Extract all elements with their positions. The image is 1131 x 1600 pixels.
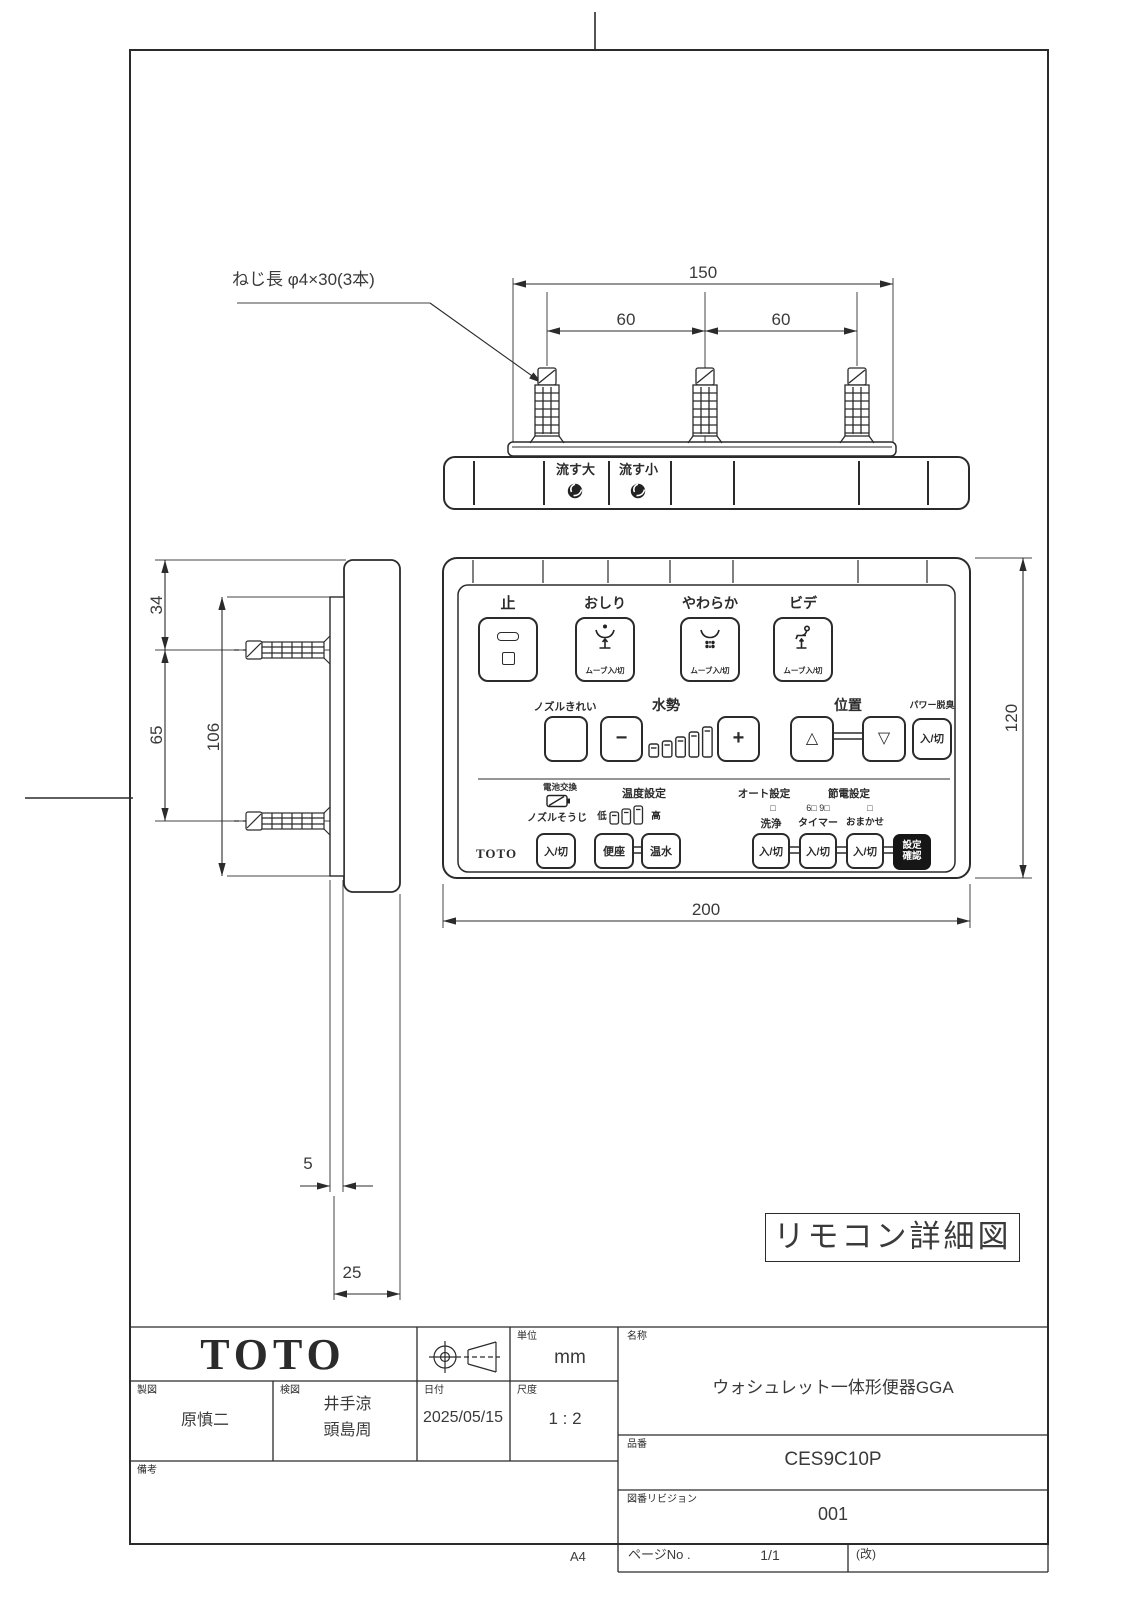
move-onoff-label: ムーブ入/切 xyxy=(684,667,736,676)
date-value: 2025/05/15 xyxy=(417,1409,509,1427)
scale-label: 尺度 xyxy=(517,1385,537,1397)
position-label: 位置 xyxy=(820,697,876,713)
paper-size: A4 xyxy=(570,1550,586,1565)
entrust-indicator: □ xyxy=(860,803,880,813)
set-confirm-line2: 確認 xyxy=(893,851,931,862)
rear-wash-label: おしり xyxy=(575,595,635,611)
remote-top-edge-view xyxy=(443,456,970,510)
eco-setting-label: 節電設定 xyxy=(820,788,878,800)
drafter-name: 原慎二 xyxy=(150,1412,260,1430)
auto-setting-label: オート設定 xyxy=(735,788,793,800)
entrust-label: おまかせ xyxy=(841,818,889,829)
water-strength-label: 水勢 xyxy=(638,697,694,713)
checker-name-2: 頭島周 xyxy=(290,1422,405,1440)
dim-remote-height: 120 xyxy=(1003,688,1021,748)
name-label: 名称 xyxy=(627,1331,647,1343)
band-divider xyxy=(927,461,929,505)
revision-mark: (改) xyxy=(856,1548,876,1562)
timer-label: タイマー xyxy=(795,818,841,830)
band-divider xyxy=(670,461,672,505)
flush-large-button: 流す大 xyxy=(543,463,608,478)
position-down-button: ▽ xyxy=(862,716,906,762)
water-minus-button: − xyxy=(600,716,643,762)
battery-icon xyxy=(546,794,572,808)
battery-label: 電池交換 xyxy=(536,783,584,793)
stamp-text: リモコン詳細図 xyxy=(774,1219,1012,1254)
remarks-label: 備考 xyxy=(137,1465,157,1477)
stop-label: 止 xyxy=(478,595,538,612)
bidet-button: ムーブ入/切 xyxy=(773,617,833,682)
drawing-sheet: ねじ長 φ4×30(3本) 150 60 60 34 65 106 120 5 … xyxy=(0,0,1131,1600)
dim-overall-width: 150 xyxy=(668,263,738,283)
wall-plate-side-view xyxy=(330,597,344,876)
wall-anchor-3 xyxy=(840,368,874,443)
wash-label: 洗浄 xyxy=(749,818,793,830)
nozzle-clean-label: ノズルきれい xyxy=(530,701,600,713)
water-plus-button: + xyxy=(717,716,760,762)
nozzle-clean-button xyxy=(544,716,588,762)
temp-setting-label: 温度設定 xyxy=(616,788,672,801)
nozzle-wash-onoff-button: 入/切 xyxy=(536,833,576,869)
position-up-button: △ xyxy=(790,716,834,762)
brand-logo: TOTO xyxy=(145,1330,401,1381)
entrust-onoff-button: 入/切 xyxy=(846,833,884,869)
remote-body-side-view xyxy=(344,560,400,892)
soft-wash-button: ムーブ入/切 xyxy=(680,617,740,682)
dim-top-offset: 34 xyxy=(148,575,166,635)
soft-spray-icon xyxy=(698,624,722,652)
scale-value: 1 : 2 xyxy=(517,1409,613,1429)
move-onoff-label: ムーブ入/切 xyxy=(777,667,829,676)
dim-pitch-side: 65 xyxy=(148,705,166,765)
nozzle-wash-label: ノズルそうじ xyxy=(527,813,585,825)
timer-onoff-button: 入/切 xyxy=(799,833,837,869)
unit-label: 単位 xyxy=(517,1331,537,1343)
unit-value: mm xyxy=(530,1347,610,1369)
wash-onoff-button: 入/切 xyxy=(752,833,790,869)
stamp-box: リモコン詳細図 xyxy=(765,1213,1020,1262)
wall-anchor-2 xyxy=(688,368,722,443)
flush-large-swirl-icon xyxy=(566,482,584,500)
page-value: 1/1 xyxy=(740,1547,800,1563)
dim-body-depth: 25 xyxy=(330,1263,374,1283)
band-divider xyxy=(733,461,735,505)
band-divider xyxy=(858,461,860,505)
side-anchor-1 xyxy=(234,636,330,664)
side-anchor-2 xyxy=(234,807,330,835)
dim-pitch-right: 60 xyxy=(755,310,807,330)
third-angle-projection-icon xyxy=(429,1341,500,1373)
dim-remote-width: 200 xyxy=(671,900,741,920)
seat-button: 便座 xyxy=(594,833,634,869)
rear-wash-button: ムーブ入/切 xyxy=(575,617,635,682)
temp-low-label: 低 xyxy=(594,812,610,823)
dim-plate-thickness: 5 xyxy=(293,1154,323,1174)
rear-spray-icon xyxy=(593,624,617,652)
name-value: ウォシュレット一体形便器GGA xyxy=(620,1378,1046,1398)
wall-anchor-1 xyxy=(530,368,564,443)
revision-value: 001 xyxy=(620,1504,1046,1525)
hot-water-button: 温水 xyxy=(641,833,681,869)
move-onoff-label: ムーブ入/切 xyxy=(579,667,631,676)
drafter-label: 製図 xyxy=(137,1385,157,1397)
deodorizer-onoff-button: 入/切 xyxy=(912,718,952,760)
screw-note: ねじ長 φ4×30(3本) xyxy=(232,270,375,290)
set-confirm-line1: 設定 xyxy=(893,840,931,851)
set-confirm-button: 設定 確認 xyxy=(893,834,931,870)
brand-logo-small: TOTO xyxy=(476,847,517,862)
dim-plate-height: 106 xyxy=(205,707,223,767)
flush-small-swirl-icon xyxy=(629,482,647,500)
bidet-person-icon xyxy=(791,624,815,652)
soft-wash-label: やわらか xyxy=(668,595,752,611)
date-label: 日付 xyxy=(424,1385,444,1397)
part-number: CES9C10P xyxy=(620,1449,1046,1471)
wash-indicator: □ xyxy=(763,803,783,813)
timer-indicator: 6□ 9□ xyxy=(790,803,846,813)
checker-label: 検図 xyxy=(280,1385,300,1397)
deodorizer-label: パワー脱臭 xyxy=(904,700,960,710)
checker-name-1: 井手涼 xyxy=(290,1396,405,1414)
bidet-label: ビデ xyxy=(773,595,833,611)
band-divider xyxy=(473,461,475,505)
stop-square-icon xyxy=(480,652,536,665)
temp-high-label: 高 xyxy=(648,812,664,823)
flush-small-button: 流す小 xyxy=(607,463,670,478)
page-label: ページNo . xyxy=(628,1548,691,1563)
stop-button xyxy=(478,617,538,682)
dim-pitch-left: 60 xyxy=(600,310,652,330)
stop-bar-icon xyxy=(480,632,536,641)
